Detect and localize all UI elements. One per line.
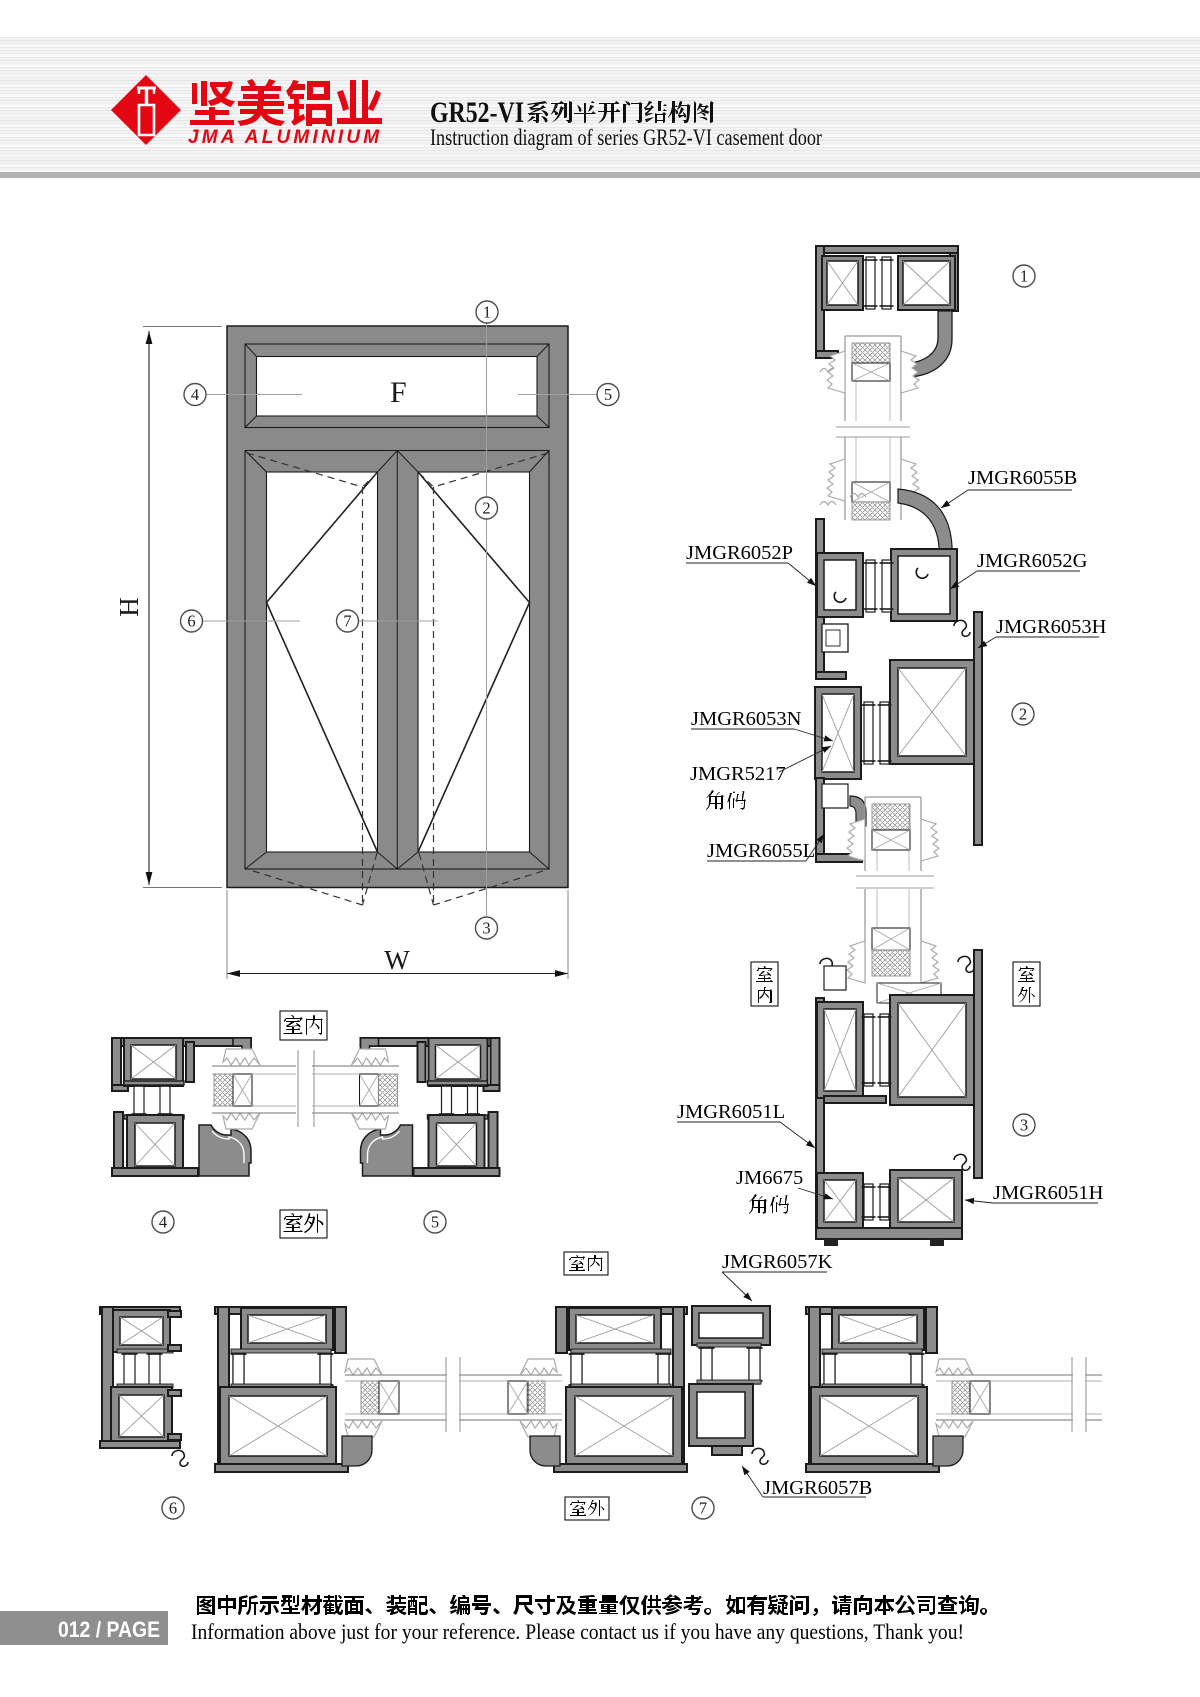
svg-text:5: 5	[604, 385, 612, 404]
svg-text:JMGR6055L: JMGR6055L	[707, 840, 815, 862]
svg-text:JMGR6052P: JMGR6052P	[686, 542, 793, 564]
svg-text:W: W	[384, 945, 410, 975]
svg-text:Information above just for you: Information above just for your referenc…	[191, 1619, 964, 1644]
svg-text:1: 1	[483, 303, 491, 322]
svg-text:012 / PAGE: 012 / PAGE	[58, 1617, 160, 1642]
svg-text:JMGR6051L: JMGR6051L	[677, 1101, 785, 1123]
svg-text:1: 1	[1020, 267, 1028, 286]
svg-text:2: 2	[482, 499, 490, 518]
svg-text:JM6675: JM6675	[736, 1167, 803, 1189]
svg-text:H: H	[114, 597, 144, 617]
svg-text:JMGR5217: JMGR5217	[690, 763, 786, 785]
svg-text:JMGR6053H: JMGR6053H	[996, 616, 1107, 638]
svg-text:JMGR6052G: JMGR6052G	[977, 550, 1088, 572]
svg-text:Instruction diagram of series: Instruction diagram of series GR52-VI ca…	[430, 125, 822, 150]
svg-text:JMGR6057B: JMGR6057B	[763, 1477, 872, 1499]
svg-text:F: F	[390, 376, 407, 409]
svg-text:4: 4	[159, 1213, 167, 1232]
svg-text:6: 6	[169, 1499, 177, 1518]
svg-text:3: 3	[482, 919, 490, 938]
svg-text:JMA ALUMINIUM: JMA ALUMINIUM	[188, 127, 382, 148]
svg-text:6: 6	[187, 612, 195, 631]
svg-text:7: 7	[343, 612, 351, 631]
svg-text:3: 3	[1020, 1116, 1028, 1135]
svg-text:5: 5	[431, 1213, 439, 1232]
svg-text:JMGR6051H: JMGR6051H	[993, 1182, 1104, 1204]
svg-text:JMGR6057K: JMGR6057K	[722, 1251, 833, 1273]
svg-text:JMGR6053N: JMGR6053N	[691, 708, 802, 730]
svg-text:7: 7	[699, 1499, 707, 1518]
svg-text:JMGR6055B: JMGR6055B	[968, 467, 1077, 489]
svg-text:2: 2	[1019, 705, 1027, 724]
svg-text:4: 4	[191, 385, 199, 404]
